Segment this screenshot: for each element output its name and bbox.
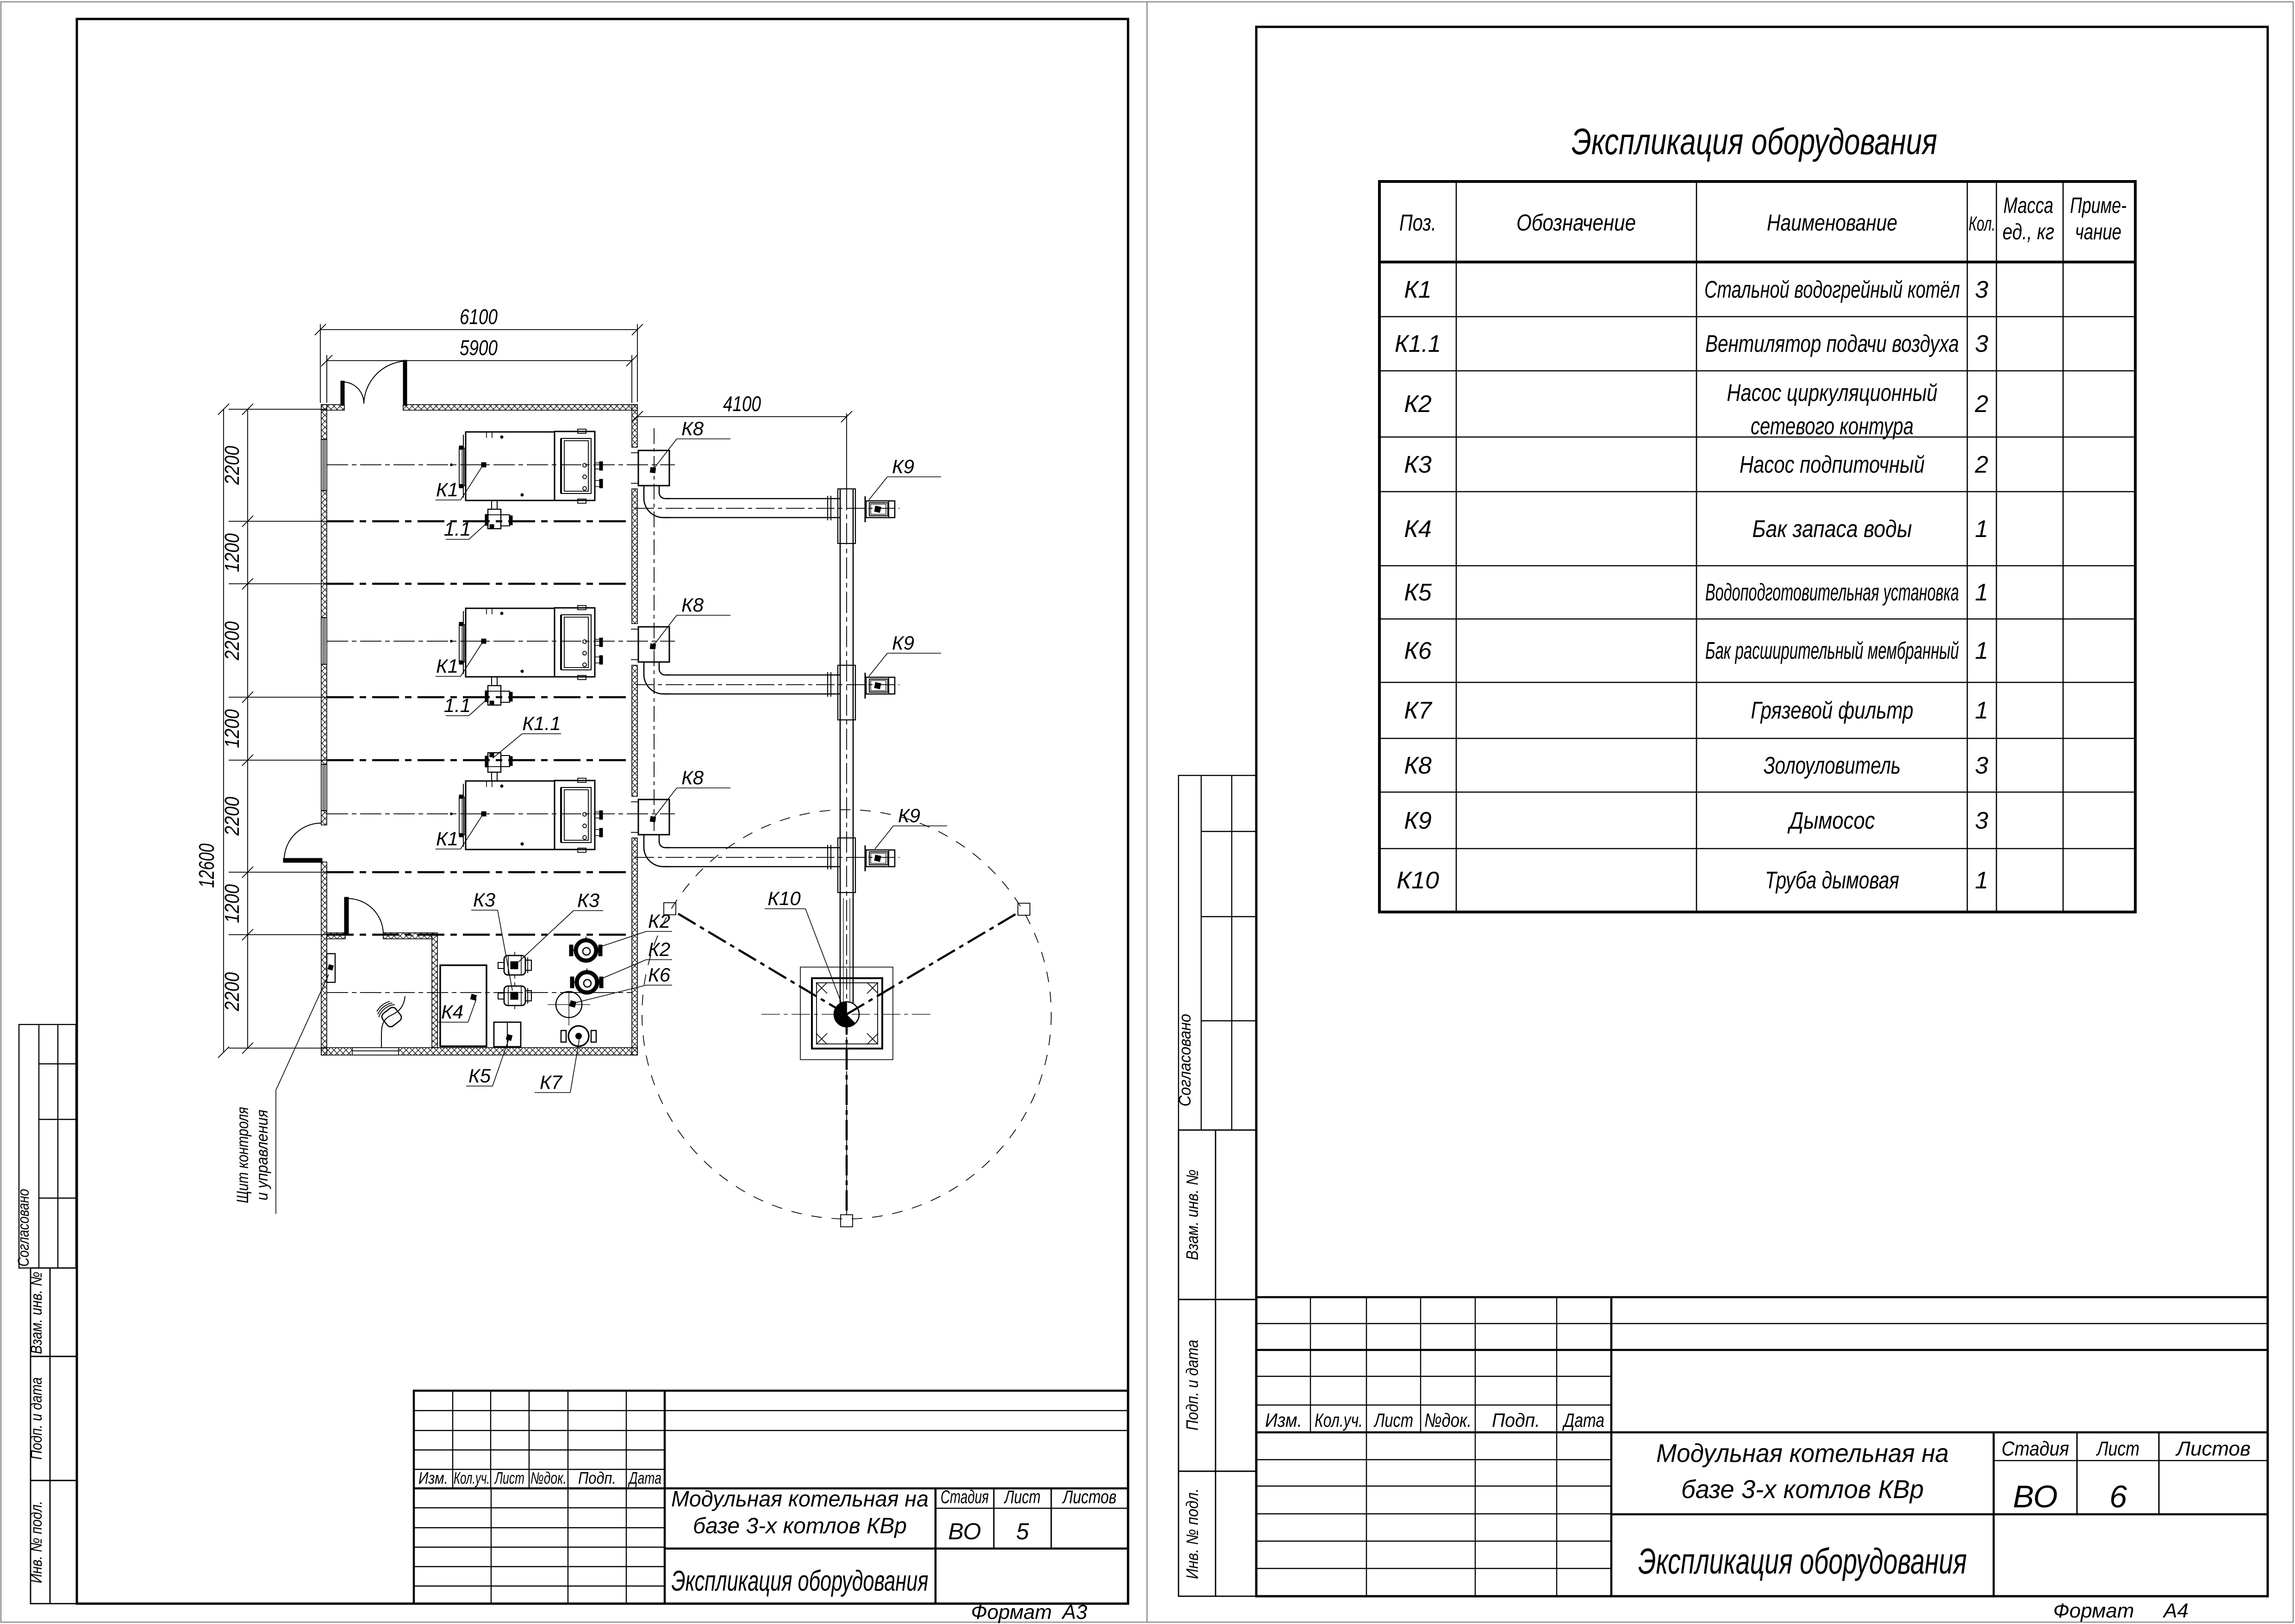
svg-text:3: 3 bbox=[1975, 276, 1989, 303]
svg-text:1: 1 bbox=[1975, 697, 1989, 724]
svg-text:Формат: Формат bbox=[2053, 1599, 2134, 1622]
svg-text:К8: К8 bbox=[681, 594, 704, 616]
svg-text:№док.: №док. bbox=[1424, 1409, 1472, 1431]
svg-text:Подп. и дата: Подп. и дата bbox=[1183, 1340, 1202, 1430]
svg-text:Насос циркуляционный: Насос циркуляционный bbox=[1727, 380, 1938, 406]
svg-text:Согласовано: Согласовано bbox=[1175, 1014, 1194, 1106]
svg-text:5900: 5900 bbox=[460, 336, 498, 360]
svg-text:Кол.: Кол. bbox=[1969, 212, 1996, 235]
svg-text:К3: К3 bbox=[1404, 451, 1432, 478]
svg-text:5: 5 bbox=[1016, 1518, 1029, 1544]
svg-text:базе 3-х котлов КВр: базе 3-х котлов КВр bbox=[1681, 1474, 1924, 1504]
svg-text:Дата: Дата bbox=[628, 1468, 661, 1487]
svg-text:12600: 12600 bbox=[194, 843, 218, 888]
svg-text:Вентилятор подачи воздуха: Вентилятор подачи воздуха bbox=[1705, 331, 1959, 357]
svg-text:Бак запаса воды: Бак запаса воды bbox=[1752, 516, 1912, 543]
svg-text:Инв. № подл.: Инв. № подл. bbox=[1183, 1488, 1202, 1579]
svg-text:Подп. и дата: Подп. и дата bbox=[28, 1377, 45, 1460]
svg-text:Лист: Лист bbox=[1004, 1487, 1041, 1507]
svg-text:6: 6 bbox=[2109, 1479, 2127, 1514]
svg-text:Изм.: Изм. bbox=[418, 1468, 448, 1487]
svg-text:3: 3 bbox=[1975, 807, 1989, 834]
svg-text:К9: К9 bbox=[1404, 807, 1432, 834]
svg-text:К2: К2 bbox=[648, 910, 670, 932]
svg-text:Лист: Лист bbox=[1373, 1409, 1413, 1431]
svg-text:1.1: 1.1 bbox=[444, 694, 471, 716]
svg-text:К1.1: К1.1 bbox=[522, 712, 561, 734]
svg-text:Стадия: Стадия bbox=[2002, 1437, 2069, 1460]
svg-text:Взам. инв. №: Взам. инв. № bbox=[1183, 1169, 1202, 1260]
svg-text:1200: 1200 bbox=[221, 533, 243, 572]
svg-text:1: 1 bbox=[1975, 867, 1989, 894]
svg-text:К10: К10 bbox=[767, 887, 801, 909]
svg-text:К1.1: К1.1 bbox=[1395, 331, 1441, 357]
svg-text:Инв. № подл.: Инв. № подл. bbox=[28, 1501, 45, 1583]
svg-text:К8: К8 bbox=[681, 767, 704, 788]
svg-text:К9: К9 bbox=[892, 456, 914, 477]
svg-text:Экспликация оборудования: Экспликация оборудования bbox=[1572, 121, 1937, 162]
svg-text:Формат: Формат bbox=[971, 1601, 1052, 1624]
svg-text:Масса: Масса bbox=[2003, 194, 2053, 218]
svg-text:К4: К4 bbox=[1404, 516, 1432, 543]
svg-text:К3: К3 bbox=[473, 889, 495, 911]
svg-text:К8: К8 bbox=[1404, 752, 1432, 779]
svg-text:3: 3 bbox=[1975, 331, 1989, 357]
svg-text:К9: К9 bbox=[892, 632, 914, 654]
svg-text:Взам. инв. №: Взам. инв. № bbox=[28, 1272, 45, 1354]
svg-text:Листов: Листов bbox=[1062, 1487, 1116, 1507]
svg-text:и управления: и управления bbox=[253, 1110, 271, 1200]
svg-text:Насос подпиточный: Насос подпиточный bbox=[1740, 451, 1925, 478]
svg-text:К2: К2 bbox=[648, 938, 670, 960]
svg-text:1: 1 bbox=[1975, 637, 1989, 664]
svg-text:Лист: Лист bbox=[494, 1468, 524, 1487]
svg-text:Стадия: Стадия bbox=[941, 1487, 989, 1507]
svg-text:К1: К1 bbox=[436, 828, 458, 849]
svg-text:К1: К1 bbox=[1404, 276, 1432, 303]
svg-text:Экспликация оборудования: Экспликация оборудования bbox=[672, 1565, 929, 1597]
svg-text:Модульная котельная на: Модульная котельная на bbox=[671, 1487, 929, 1512]
svg-text:К1: К1 bbox=[436, 479, 458, 500]
svg-text:1: 1 bbox=[1975, 579, 1989, 606]
svg-text:2: 2 bbox=[1975, 391, 1989, 418]
svg-text:К7: К7 bbox=[1404, 697, 1433, 724]
svg-text:2200: 2200 bbox=[221, 972, 243, 1012]
svg-text:К1: К1 bbox=[436, 655, 458, 677]
svg-text:6100: 6100 bbox=[460, 305, 498, 329]
svg-text:1200: 1200 bbox=[221, 709, 243, 748]
svg-text:Бак расширительный мембранный: Бак расширительный мембранный bbox=[1705, 637, 1959, 664]
svg-text:2200: 2200 bbox=[221, 621, 243, 661]
svg-text:Труба дымовая: Труба дымовая bbox=[1765, 867, 1899, 894]
svg-text:Водоподготовительная установка: Водоподготовительная установка bbox=[1705, 579, 1959, 606]
svg-text:Изм.: Изм. bbox=[1265, 1409, 1302, 1431]
svg-text:Золоуловитель: Золоуловитель bbox=[1764, 752, 1901, 779]
svg-text:сетевого контура: сетевого контура bbox=[1751, 413, 1914, 440]
svg-text:Поз.: Поз. bbox=[1399, 210, 1436, 236]
svg-text:Экспликация оборудования: Экспликация оборудования bbox=[1638, 1541, 1967, 1581]
svg-text:чание: чание bbox=[2075, 220, 2121, 244]
svg-text:ВО: ВО bbox=[948, 1518, 981, 1544]
svg-text:4100: 4100 bbox=[723, 392, 761, 416]
svg-text:К8: К8 bbox=[681, 418, 704, 439]
svg-text:ВО: ВО bbox=[2013, 1479, 2058, 1514]
svg-text:К4: К4 bbox=[441, 1001, 463, 1023]
svg-text:2: 2 bbox=[1975, 451, 1989, 478]
svg-text:Обозначение: Обозначение bbox=[1516, 210, 1636, 236]
svg-text:2200: 2200 bbox=[221, 446, 243, 485]
svg-text:1200: 1200 bbox=[221, 884, 243, 923]
svg-text:Кол.уч.: Кол.уч. bbox=[454, 1468, 490, 1487]
svg-text:Модульная котельная на: Модульная котельная на bbox=[1656, 1438, 1949, 1468]
svg-text:А4: А4 bbox=[2162, 1599, 2189, 1622]
svg-text:К3: К3 bbox=[577, 889, 599, 911]
svg-text:К9: К9 bbox=[898, 805, 920, 826]
svg-text:базе 3-х котлов КВр: базе 3-х котлов КВр bbox=[693, 1514, 907, 1538]
svg-text:Грязевой фильтр: Грязевой фильтр bbox=[1751, 697, 1914, 724]
svg-text:Стальной водогрейный котёл: Стальной водогрейный котёл bbox=[1704, 276, 1960, 303]
svg-text:К2: К2 bbox=[1404, 391, 1432, 418]
svg-text:№док.: №док. bbox=[530, 1468, 567, 1487]
svg-text:ед., кг: ед., кг bbox=[2002, 220, 2054, 244]
svg-text:Дата: Дата bbox=[1562, 1409, 1604, 1431]
svg-text:К6: К6 bbox=[1404, 637, 1432, 664]
svg-text:1.1: 1.1 bbox=[444, 518, 471, 540]
svg-text:К7: К7 bbox=[540, 1071, 563, 1093]
svg-text:Лист: Лист bbox=[2096, 1437, 2139, 1460]
svg-text:1: 1 bbox=[1975, 516, 1989, 543]
svg-text:Согласовано: Согласовано bbox=[15, 1189, 32, 1267]
svg-text:К5: К5 bbox=[1404, 579, 1432, 606]
svg-text:К10: К10 bbox=[1397, 867, 1439, 894]
svg-text:К5: К5 bbox=[468, 1065, 491, 1087]
svg-text:К6: К6 bbox=[648, 964, 671, 986]
svg-text:Дымосос: Дымосос bbox=[1787, 807, 1875, 834]
svg-text:Приме-: Приме- bbox=[2070, 194, 2127, 218]
svg-text:Щит контроля: Щит контроля bbox=[234, 1107, 252, 1203]
svg-text:А3: А3 bbox=[1061, 1601, 1087, 1624]
svg-text:2200: 2200 bbox=[221, 797, 243, 836]
svg-text:Подп.: Подп. bbox=[578, 1468, 616, 1487]
svg-text:Кол.уч.: Кол.уч. bbox=[1315, 1409, 1363, 1431]
svg-text:Подп.: Подп. bbox=[1492, 1409, 1540, 1431]
svg-text:3: 3 bbox=[1975, 752, 1989, 779]
svg-text:Наименование: Наименование bbox=[1767, 210, 1897, 236]
svg-text:Листов: Листов bbox=[2175, 1437, 2251, 1460]
